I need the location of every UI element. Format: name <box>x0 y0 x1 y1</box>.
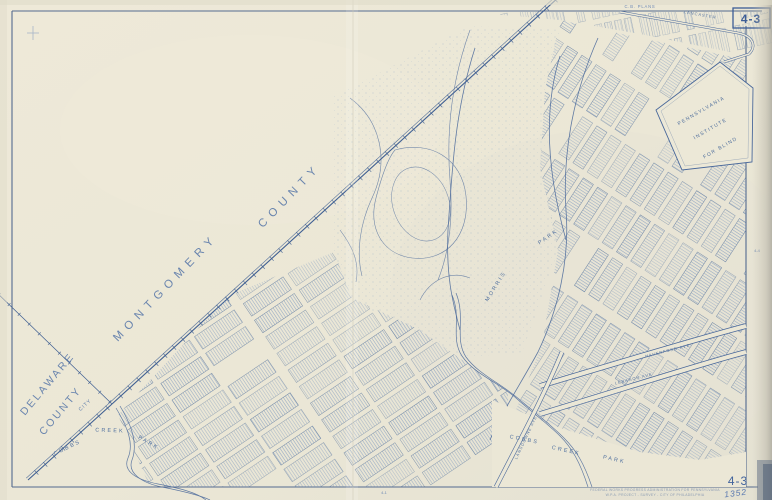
adjacent-sheet-bottom: 4-1 <box>381 490 388 495</box>
paper-left-edge <box>0 0 7 500</box>
caption-line-1: FEDERAL WORKS PROGRESS ADMINISTRATION FO… <box>590 488 720 492</box>
label-cobbs-sw-2: CREEK <box>95 427 125 434</box>
fold-crease <box>346 0 358 500</box>
page-edge-shadow <box>752 0 772 500</box>
caption-line-2: W.P.A. PROJECT - SURVEY - CITY OF PHILAD… <box>606 493 705 497</box>
paper-top-edge <box>0 0 772 5</box>
blueprint-map-sheet: MONTGOMERY COUNTY DELAWARE COUNTY <box>0 0 772 500</box>
corner-overlap-darker <box>763 464 772 500</box>
map-canvas: MONTGOMERY COUNTY DELAWARE COUNTY <box>0 0 772 500</box>
